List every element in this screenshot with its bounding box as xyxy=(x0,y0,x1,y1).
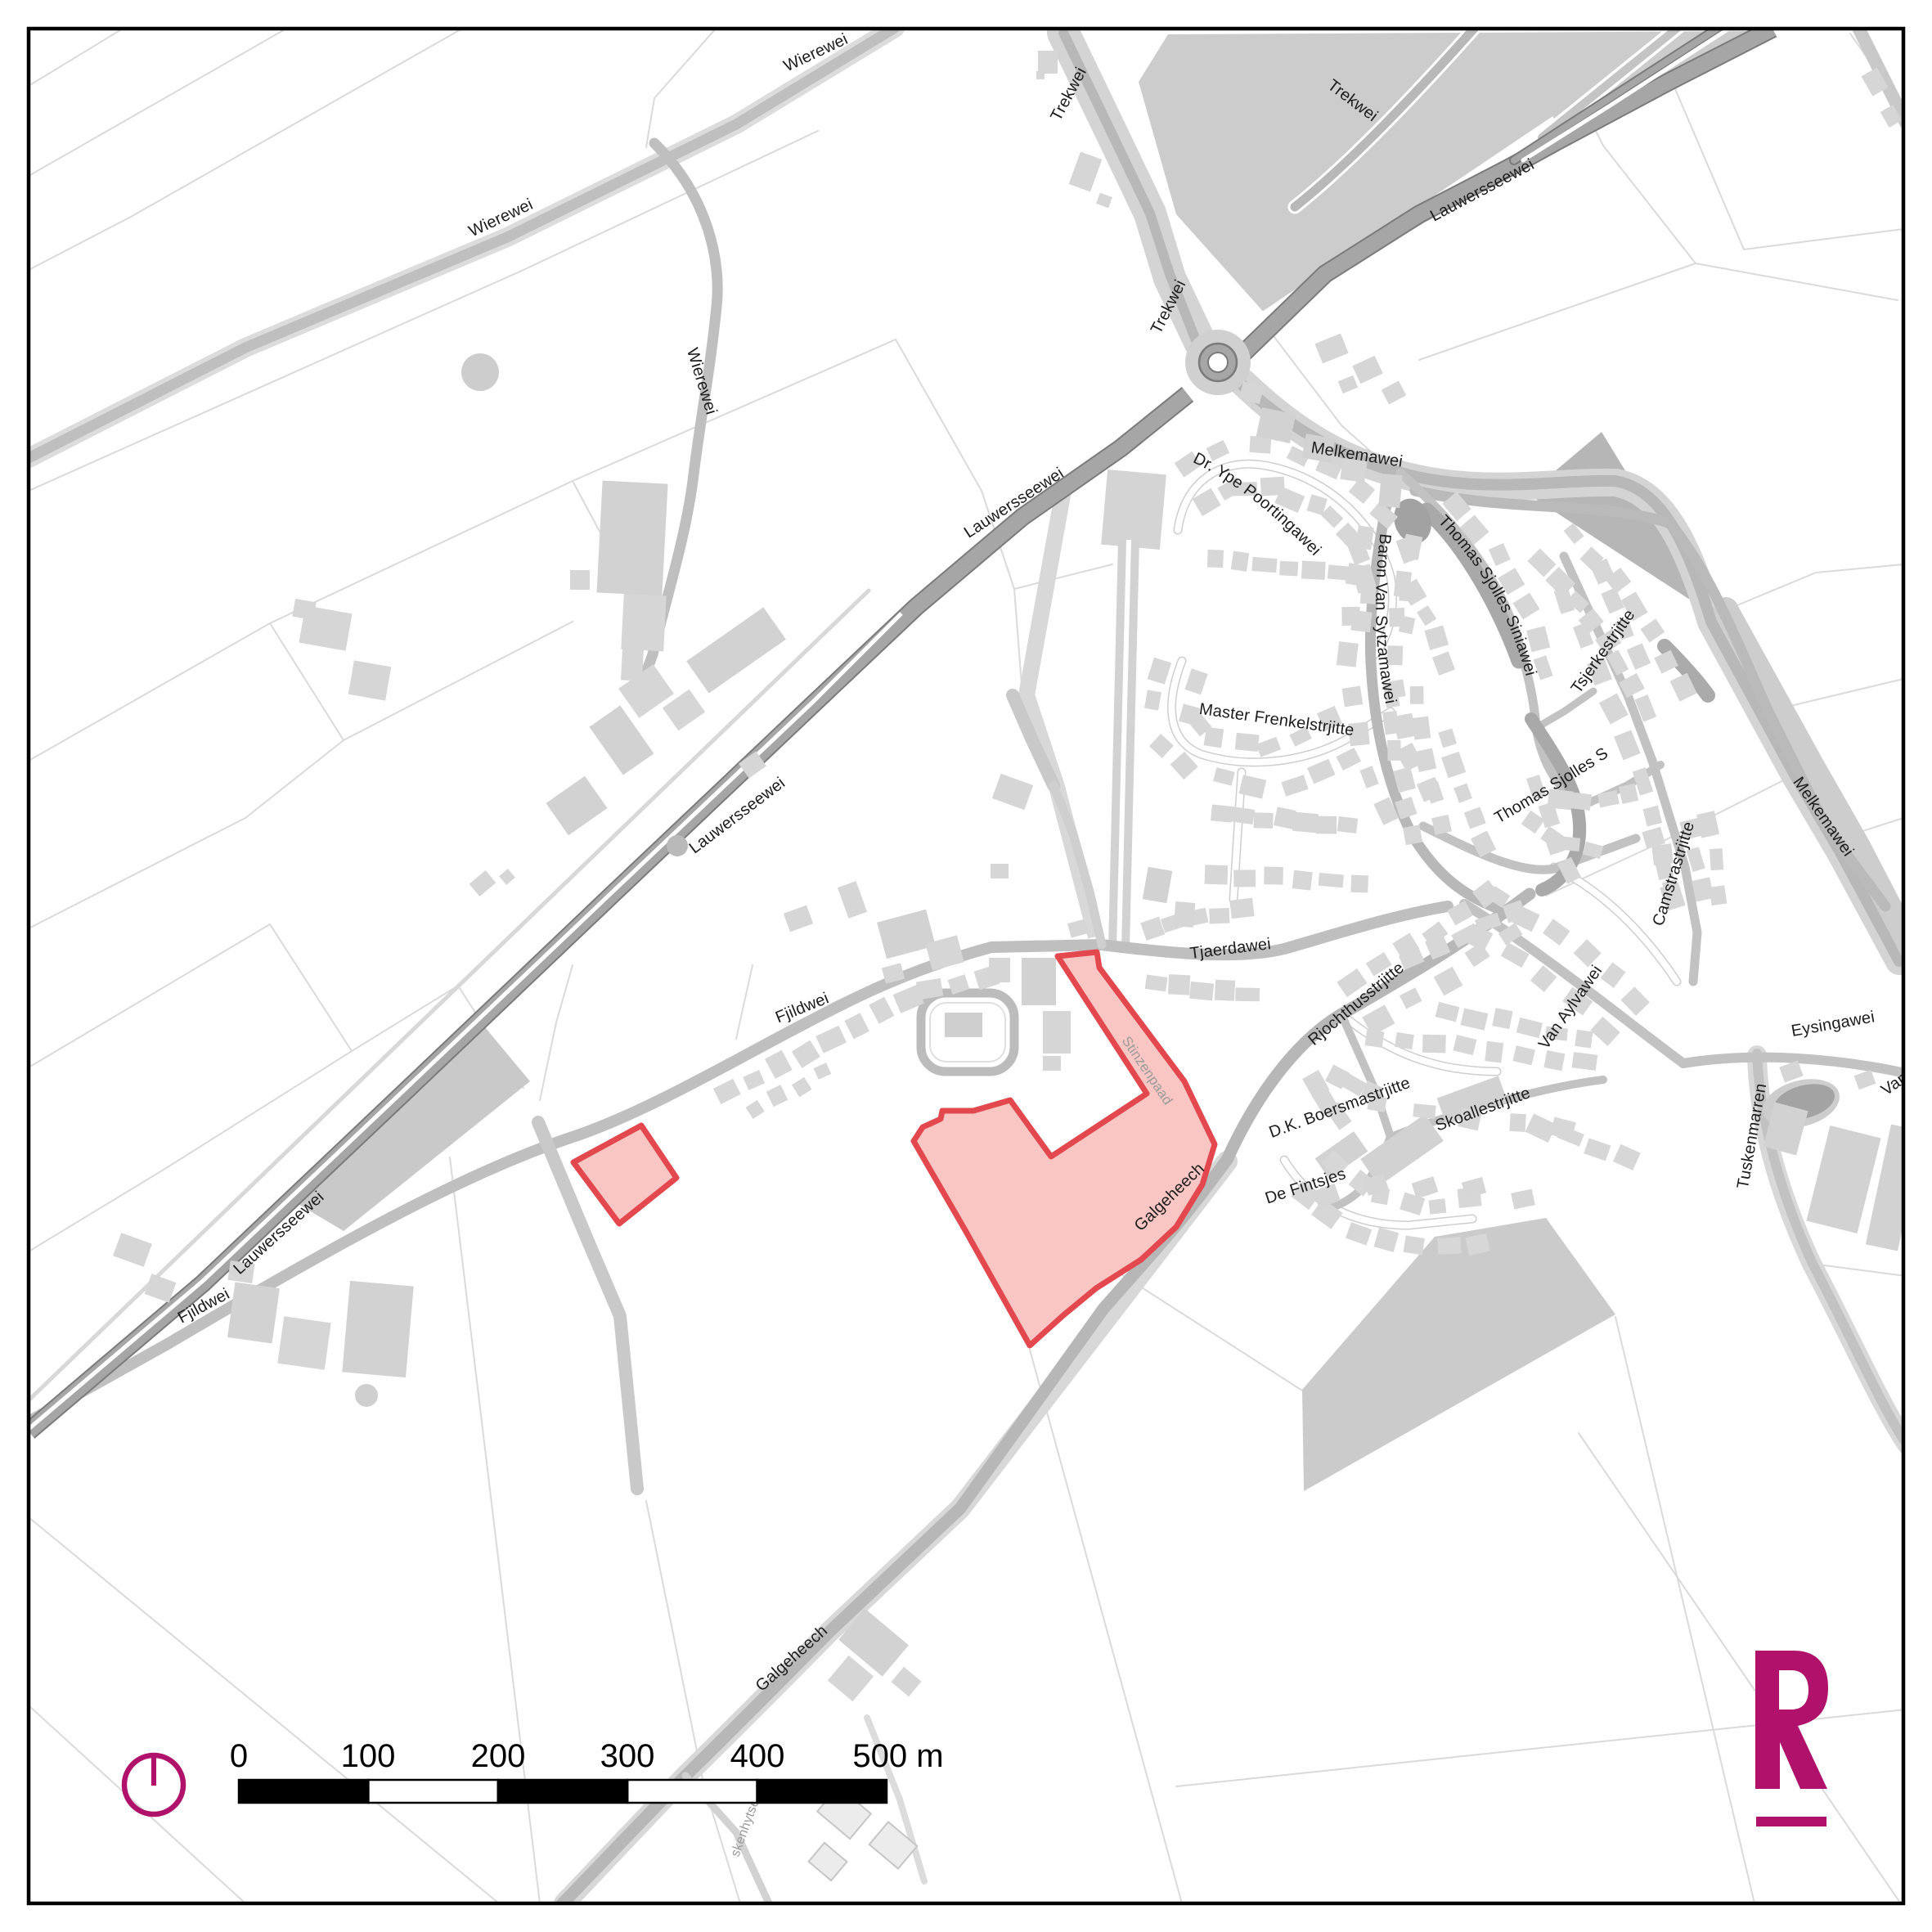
svg-text:500 m: 500 m xyxy=(852,1738,943,1774)
svg-text:100: 100 xyxy=(341,1738,396,1774)
svg-text:200: 200 xyxy=(471,1738,526,1774)
svg-text:300: 300 xyxy=(600,1738,655,1774)
svg-text:0: 0 xyxy=(230,1738,248,1774)
svg-text:400: 400 xyxy=(730,1738,785,1774)
